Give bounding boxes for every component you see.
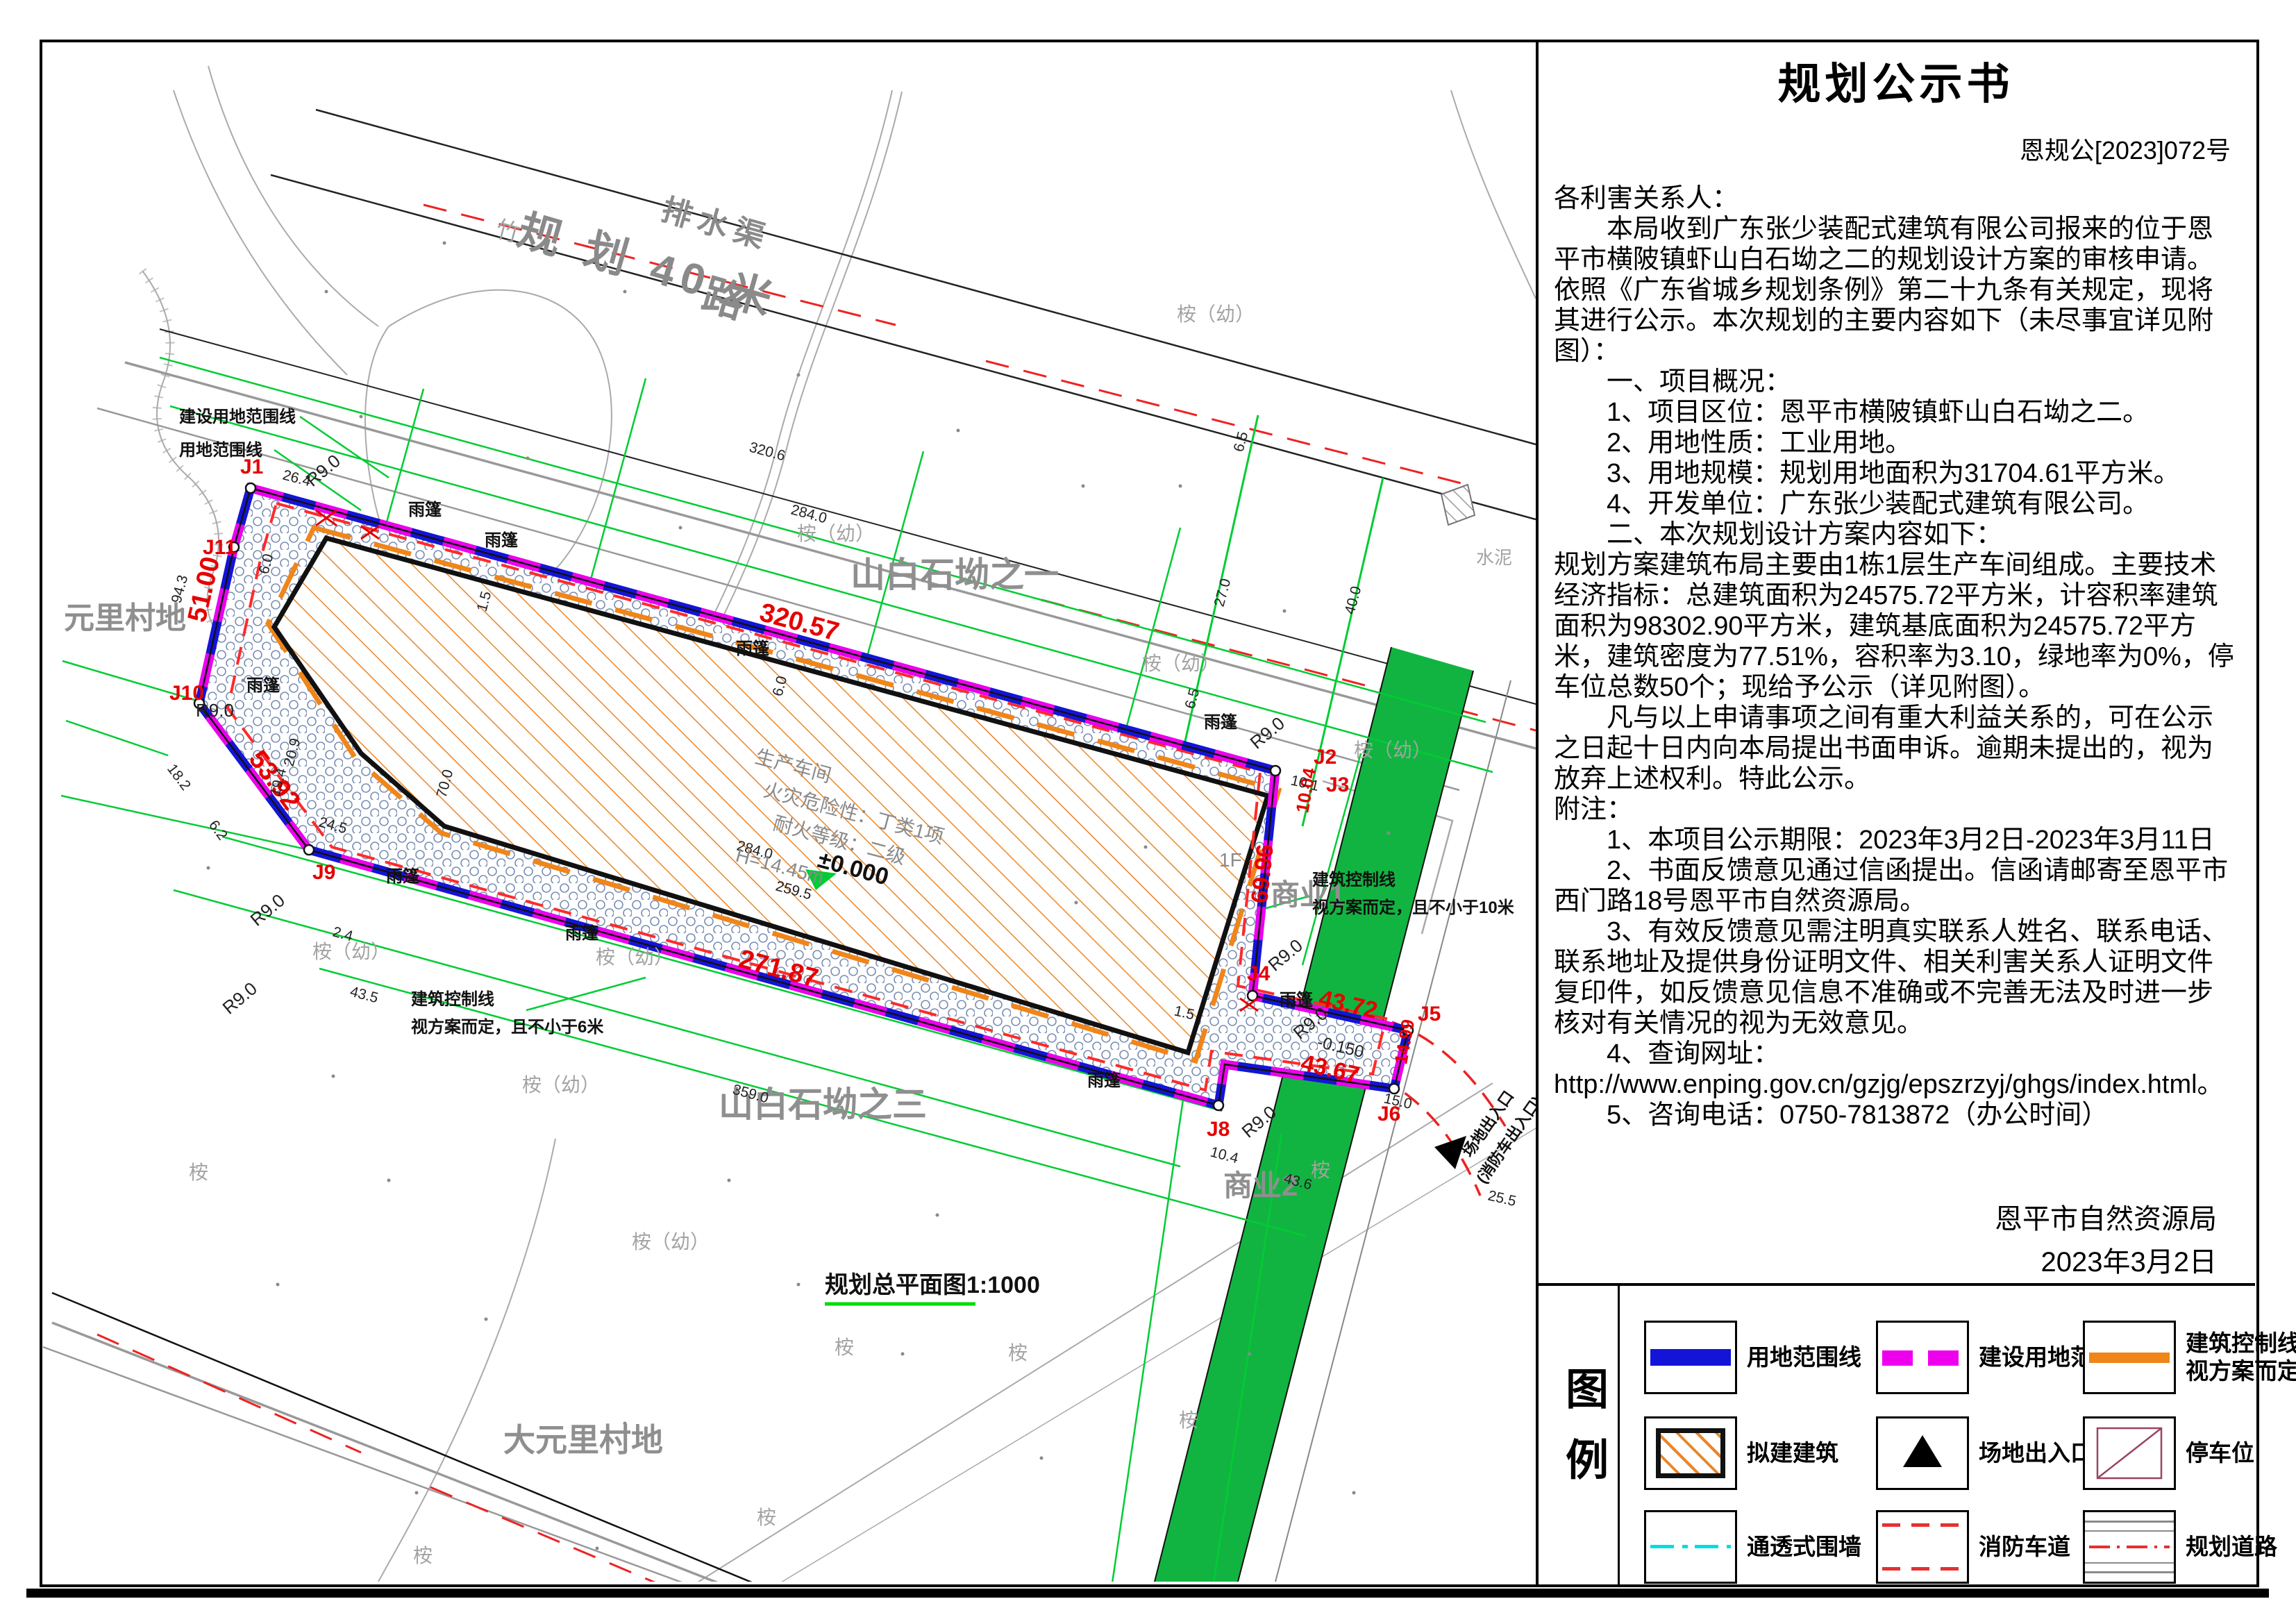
legend-label: 规划道路 xyxy=(2186,1533,2277,1561)
map-label: 排水渠 xyxy=(657,193,775,257)
map-label: 雨篷 xyxy=(1204,712,1238,732)
map-label: 桉 xyxy=(1179,1409,1198,1431)
terrain-dot xyxy=(1040,1457,1044,1460)
announcement-body: 各利害关系人：本局收到广东张少装配式建筑有限公司报来的位于恩平市横陂镇虾山白石坳… xyxy=(1554,183,2238,1130)
map-label: R9.0 xyxy=(246,889,289,930)
map-label: 桉 xyxy=(413,1545,433,1566)
terrain-dot xyxy=(1248,1353,1252,1356)
terrain-dot xyxy=(797,1283,801,1287)
map-label: R9.0 xyxy=(196,700,234,721)
map-label: R9.0 xyxy=(219,978,261,1018)
terrain-dot xyxy=(679,526,682,530)
terrain-dot xyxy=(325,290,328,294)
terrain-dot xyxy=(443,242,446,245)
announcement-paragraph: 1、项目区位：恩平市横陂镇虾山白石坳之二。 xyxy=(1554,397,2238,428)
map-label: 桉（幼） xyxy=(596,946,673,968)
page-title: 规划公示书 xyxy=(1554,49,2238,111)
announcement-paragraph: 各利害关系人： xyxy=(1554,183,2238,214)
terrain-dot xyxy=(276,1283,280,1287)
map-label: 桉（幼） xyxy=(1354,739,1432,761)
map-label: 雨篷 xyxy=(1087,1071,1121,1090)
announcement-paragraph: 5、咨询电话：0750-7813872（办公时间） xyxy=(1554,1100,2238,1130)
legend-label: 停车位 xyxy=(2186,1439,2254,1467)
terrain-dot xyxy=(901,1353,905,1356)
announcement-paragraph: 规划方案建筑布局主要由1栋1层生产车间组成。主要技术经济指标：总建筑面积为245… xyxy=(1554,550,2238,703)
legend-label: 消防车道 xyxy=(1979,1533,2070,1561)
terrain-dot xyxy=(1075,901,1078,905)
fence-swatch xyxy=(1644,1510,1737,1584)
map-label: J4 xyxy=(1247,962,1271,985)
map-label: 雨篷 xyxy=(1280,990,1314,1010)
map-label: 桉（幼） xyxy=(797,523,875,544)
announcement-paragraph: 3、有效反馈意见需注明真实联系人姓名、联系电话、联系地址及提供身份证明文件、相关… xyxy=(1554,916,2238,1039)
map-label: 建设用地范围线 xyxy=(179,408,296,426)
terrain-dot xyxy=(1387,832,1391,835)
map-label: J11 xyxy=(203,536,236,559)
panel-divider xyxy=(1536,40,1539,1584)
legend-label: 用地范围线 xyxy=(1747,1343,1861,1371)
legend-item-planned-road: 规划道路 xyxy=(2083,1510,2277,1584)
terrain-dot xyxy=(332,1075,335,1078)
map-label: 雨篷 xyxy=(485,530,519,550)
map-label: 桉（幼） xyxy=(1142,653,1220,674)
announcement-paragraph: http://www.enping.gov.cn/gzjg/epszrzyj/g… xyxy=(1554,1069,2238,1100)
legend-title: 图例 xyxy=(1550,1323,1614,1552)
map-label: 桉 xyxy=(1311,1160,1330,1181)
map-label: 桉 xyxy=(189,1162,208,1183)
map-label: 桉（幼） xyxy=(312,941,390,962)
map-labels: 元里村地山白石坳之一山白石坳之三大元里村地商业1商业2水泥竹桉（幼）桉（幼）桉（… xyxy=(64,193,1536,1566)
site-plan-drawing: 元里村地山白石坳之一山白石坳之三大元里村地商业1商业2水泥竹桉（幼）桉（幼）桉（… xyxy=(42,42,1536,1582)
map-label: 桉（幼） xyxy=(1177,303,1255,325)
map-label: 320.6 xyxy=(748,440,787,464)
terrain-dot xyxy=(387,1179,391,1182)
announcement-paragraph: 本局收到广东张少装配式建筑有限公司报来的位于恩平市横陂镇虾山白石坳之二的规划设计… xyxy=(1554,214,2238,367)
legend-item-site-entrance: 场地出入口 xyxy=(1876,1416,2093,1490)
parking-swatch xyxy=(2083,1416,2176,1490)
legend-label: 拟建建筑 xyxy=(1747,1439,1838,1467)
map-label: 桉（幼） xyxy=(632,1231,710,1253)
legend-item-building-control: 建筑控制线，视方案而定 xyxy=(2083,1321,2296,1394)
map-label: J5 xyxy=(1418,1003,1441,1026)
legend-item-fire-lane: 消防车道 xyxy=(1876,1510,2070,1584)
map-label: 雨篷 xyxy=(565,923,599,943)
map-label: 大元里村地 xyxy=(503,1422,663,1458)
map-label: 雨篷 xyxy=(408,500,442,519)
map-label: 6.2 xyxy=(206,817,231,843)
map-label: J3 xyxy=(1326,773,1349,796)
map-label: 桉 xyxy=(757,1507,776,1528)
map-label: 桉 xyxy=(1008,1342,1028,1364)
map-label: 建筑控制线 xyxy=(411,989,494,1009)
map-label: 10.4 xyxy=(1209,1144,1241,1167)
fire-lane-swatch xyxy=(1876,1510,1969,1584)
announcement-paragraph: 凡与以上申请事项之间有重大利益关系的，可在公示之日起十日内向本局提出书面申诉。逾… xyxy=(1554,703,2238,794)
map-label: 规划总平面图1:1000 xyxy=(825,1272,1040,1298)
document-number: 恩规公[2023]072号 xyxy=(1554,131,2238,167)
legend-label: 通透式围墙 xyxy=(1747,1533,1861,1561)
terrain-dot xyxy=(596,1547,599,1550)
building-control-swatch xyxy=(2083,1321,2176,1394)
signature-block: 恩平市自然资源局 2023年3月2日 xyxy=(1995,1198,2217,1284)
signature-date: 2023年3月2日 xyxy=(1995,1241,2217,1284)
land-boundary-swatch xyxy=(1644,1321,1737,1394)
announcement-paragraph: 1、本项目公示期限：2023年3月2日-2023年3月11日 xyxy=(1554,825,2238,855)
map-label: J1 xyxy=(240,455,263,478)
construction-boundary-swatch xyxy=(1876,1321,1969,1394)
planned-road-swatch xyxy=(2083,1510,2176,1584)
terrain-dot xyxy=(936,1214,939,1217)
announcement-paragraph: 一、项目概况： xyxy=(1554,367,2238,397)
announcement-paragraph: 4、查询网址： xyxy=(1554,1039,2238,1069)
terrain-dot xyxy=(207,867,210,870)
legend-label: 建筑控制线，视方案而定 xyxy=(2186,1330,2296,1385)
terrain-dot xyxy=(1283,610,1287,613)
map-label: 元里村地 xyxy=(64,601,186,635)
terrain-dot xyxy=(360,415,363,419)
terrain-dot xyxy=(728,1179,731,1182)
terrain-dot xyxy=(526,457,530,460)
map-label: J8 xyxy=(1207,1118,1230,1141)
site-entrance-swatch xyxy=(1876,1416,1969,1490)
map-label: 27.0 xyxy=(1212,577,1234,608)
map-label: 建筑控制线 xyxy=(1312,870,1396,889)
entrance-triangle-icon xyxy=(1903,1435,1942,1467)
announcement-paragraph: 2、用地性质：工业用地。 xyxy=(1554,428,2238,458)
terrain-dot xyxy=(1144,846,1148,849)
announcement-panel: 规划公示书 恩规公[2023]072号 各利害关系人：本局收到广东张少装配式建筑… xyxy=(1554,49,2238,1278)
map-label: R9.0 xyxy=(1264,935,1307,975)
terrain-dot xyxy=(242,679,245,683)
terrain-dot xyxy=(797,374,801,377)
map-label: 40.0 xyxy=(1342,585,1365,616)
proposed-building-swatch xyxy=(1644,1416,1737,1490)
sheet-bottom-bar xyxy=(26,1589,2269,1598)
announcement-paragraph: 3、用地规模：规划用地面积为31704.61平方米。 xyxy=(1554,458,2238,489)
announcement-paragraph: 2、书面反馈意见通过信函提出。信函请邮寄至恩平市西门路18号恩平市自然资源局。 xyxy=(1554,855,2238,916)
map-label: J2 xyxy=(1314,746,1336,769)
terrain-dot xyxy=(1082,485,1085,488)
cement-building xyxy=(1441,485,1475,525)
map-label: 桉 xyxy=(835,1337,854,1358)
terrain-dot xyxy=(1352,1491,1356,1495)
legend-label: 场地出入口 xyxy=(1979,1439,2093,1467)
announcement-paragraph: 二、本次规划设计方案内容如下： xyxy=(1554,519,2238,550)
map-label: 6.5 xyxy=(1231,430,1252,453)
map-label: 视方案而定，且不小于10米 xyxy=(1312,898,1514,917)
terrain-dot xyxy=(415,1491,419,1495)
terrain-dot xyxy=(485,1318,488,1321)
terrain-dot xyxy=(1179,485,1182,488)
terrain-dot xyxy=(623,290,627,294)
map-label: 水泥 xyxy=(1476,547,1512,568)
announcement-paragraph: 附注： xyxy=(1554,794,2238,825)
map-label: 6.5 xyxy=(1182,687,1203,710)
legend-item-proposed-building: 拟建建筑 xyxy=(1644,1416,1838,1490)
map-label: 桉（幼） xyxy=(522,1074,600,1096)
announcement-paragraph: 4、开发单位：广东张少装配式建筑有限公司。 xyxy=(1554,489,2238,519)
map-label: 雨篷 xyxy=(246,676,280,695)
map-label: 雨篷 xyxy=(736,639,770,658)
legend-item-land-boundary: 用地范围线 xyxy=(1644,1321,1861,1394)
map-label: 雨篷 xyxy=(386,867,420,886)
legend-title-divider xyxy=(1618,1286,1620,1584)
terrain-dot xyxy=(957,429,960,433)
legend-item-parking: 停车位 xyxy=(2083,1416,2254,1490)
map-label: 18.2 xyxy=(164,761,194,793)
signature-authority: 恩平市自然资源局 xyxy=(1995,1198,2217,1241)
map-label: 山白石坳之一 xyxy=(850,555,1059,594)
map-label: 43.5 xyxy=(349,984,380,1007)
map-label: 1F xyxy=(1219,849,1242,871)
map-label: J9 xyxy=(312,861,335,884)
map-label: 25.5 xyxy=(1486,1187,1518,1209)
map-label: 视方案而定，且不小于6米 xyxy=(411,1017,603,1037)
legend-item-fence: 通透式围墙 xyxy=(1644,1510,1861,1584)
map-label: R9.0 xyxy=(1246,712,1289,753)
